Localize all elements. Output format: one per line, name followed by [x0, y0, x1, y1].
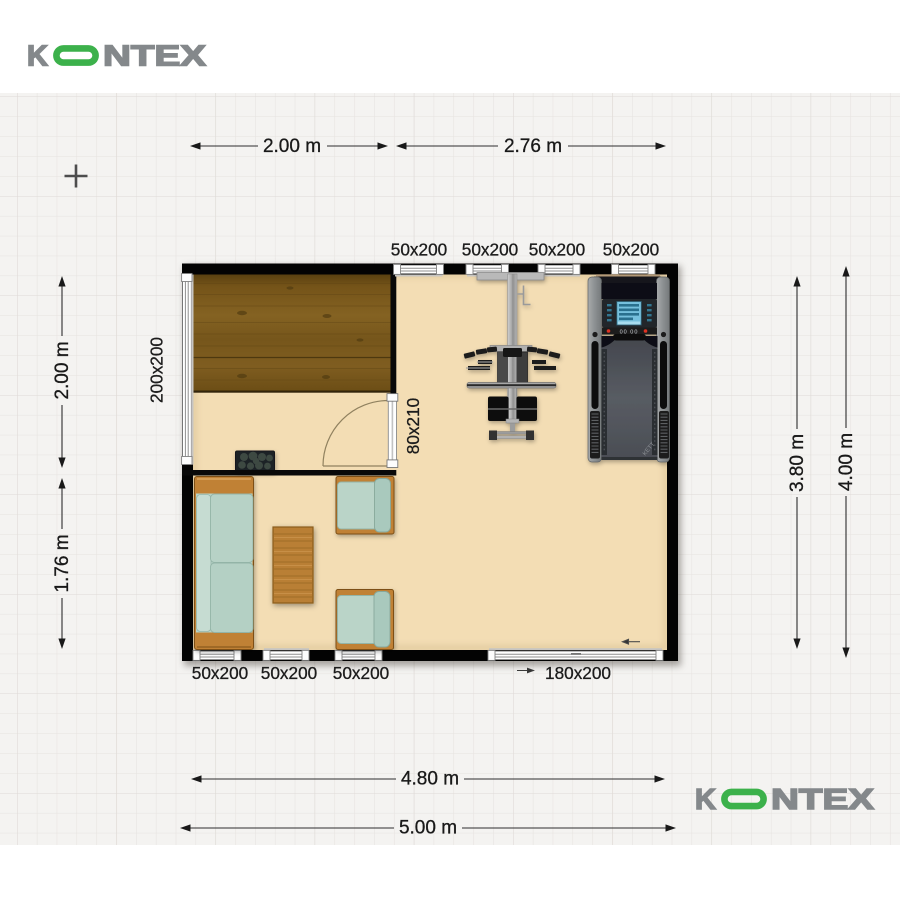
- svg-text:1.76 m: 1.76 m: [52, 534, 73, 592]
- svg-text:50x200: 50x200: [391, 240, 447, 260]
- svg-text:50x200: 50x200: [261, 663, 317, 683]
- svg-text:50x200: 50x200: [333, 663, 389, 683]
- svg-text:50x200: 50x200: [603, 240, 659, 260]
- svg-text:180x200: 180x200: [545, 663, 611, 683]
- svg-text:50x200: 50x200: [462, 240, 518, 260]
- svg-text:50x200: 50x200: [192, 663, 248, 683]
- svg-text:3.80 m: 3.80 m: [787, 434, 808, 492]
- svg-text:200x200: 200x200: [147, 337, 167, 403]
- svg-text:2.00 m: 2.00 m: [52, 341, 73, 399]
- svg-text:50x200: 50x200: [529, 240, 585, 260]
- svg-text:4.00 m: 4.00 m: [836, 433, 857, 491]
- svg-text:2.00 m: 2.00 m: [263, 136, 321, 157]
- svg-text:2.76 m: 2.76 m: [504, 136, 562, 157]
- svg-text:5.00 m: 5.00 m: [399, 818, 457, 839]
- svg-text:4.80 m: 4.80 m: [401, 769, 459, 790]
- svg-text:80x210: 80x210: [403, 398, 423, 454]
